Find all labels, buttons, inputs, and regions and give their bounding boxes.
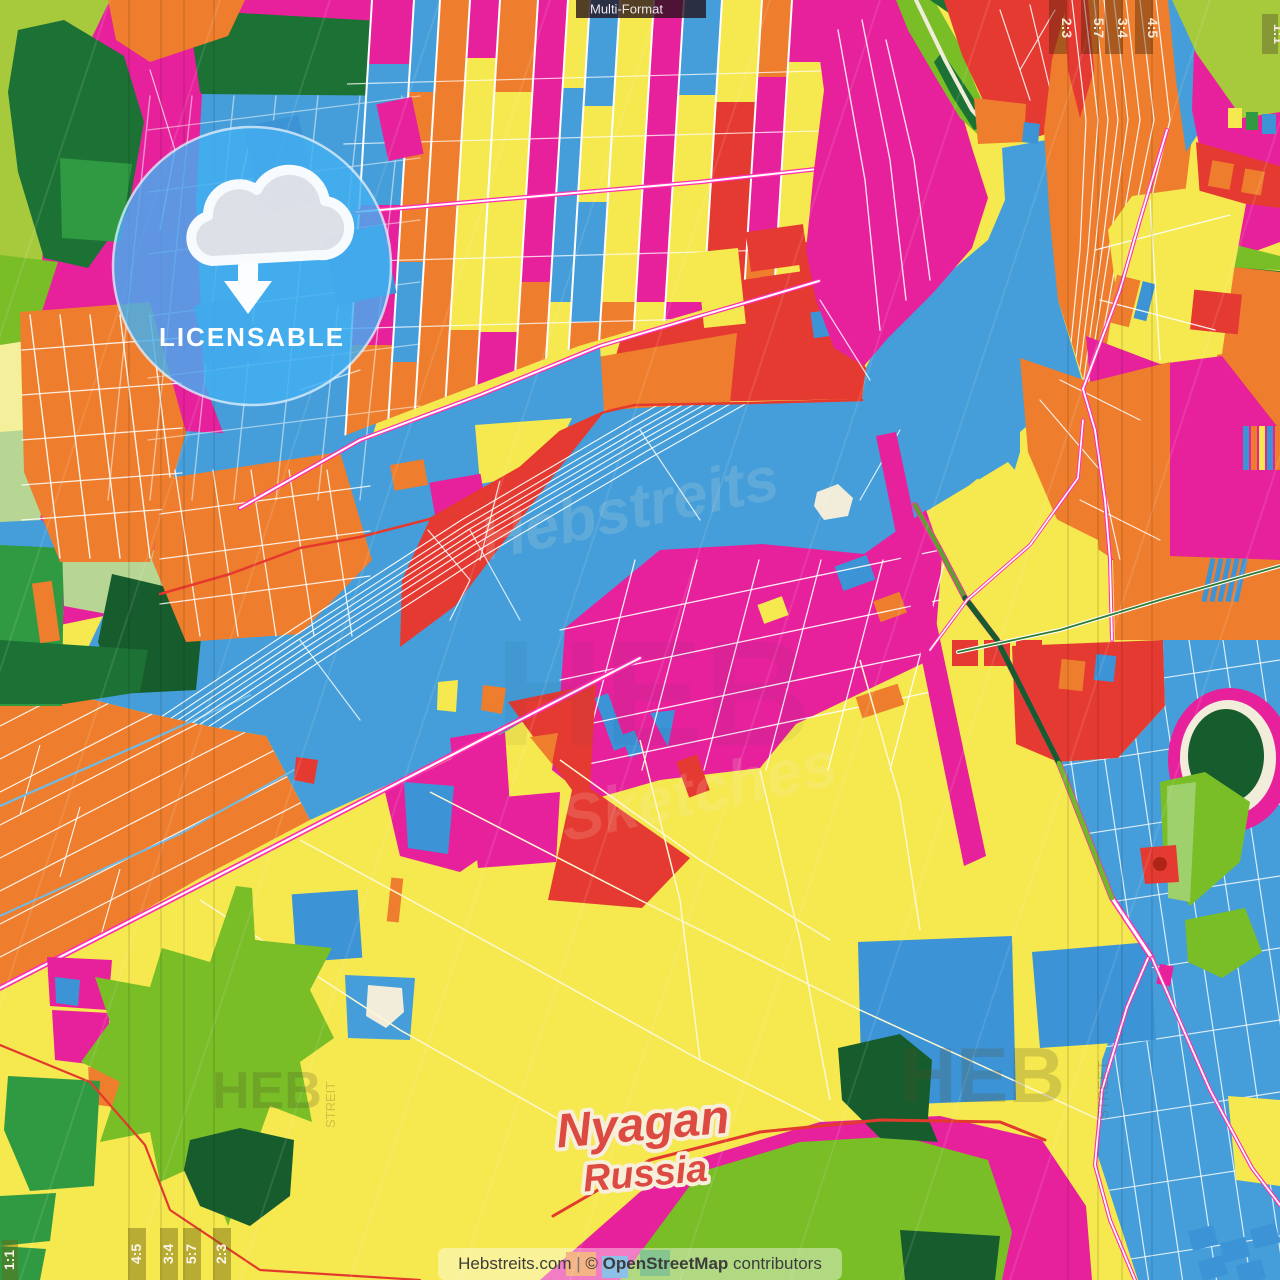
svg-text:2:3: 2:3 <box>1059 18 1075 38</box>
svg-text:4:5: 4:5 <box>1145 18 1161 38</box>
svg-text:5:7: 5:7 <box>183 1244 199 1264</box>
svg-text:1:1: 1:1 <box>1 1250 17 1270</box>
svg-text:LICENSABLE: LICENSABLE <box>159 322 345 352</box>
svg-text:HEB: HEB <box>900 1031 1065 1119</box>
svg-text:5:7: 5:7 <box>1091 18 1107 38</box>
svg-text:3:4: 3:4 <box>1115 18 1131 38</box>
svg-text:Multi-Format: Multi-Format <box>590 2 663 17</box>
svg-text:3:4: 3:4 <box>160 1244 176 1264</box>
svg-text:STREIT: STREIT <box>323 1082 338 1128</box>
svg-text:4:5: 4:5 <box>128 1244 144 1264</box>
svg-text:HEB: HEB <box>495 609 812 777</box>
svg-text:2:3: 2:3 <box>213 1244 229 1264</box>
svg-text:HEB: HEB <box>212 1062 322 1120</box>
svg-text:Hebstreits.com | © OpenStreetM: Hebstreits.com | © OpenStreetMap contrib… <box>458 1254 822 1273</box>
svg-text:1:1: 1:1 <box>1271 24 1280 44</box>
